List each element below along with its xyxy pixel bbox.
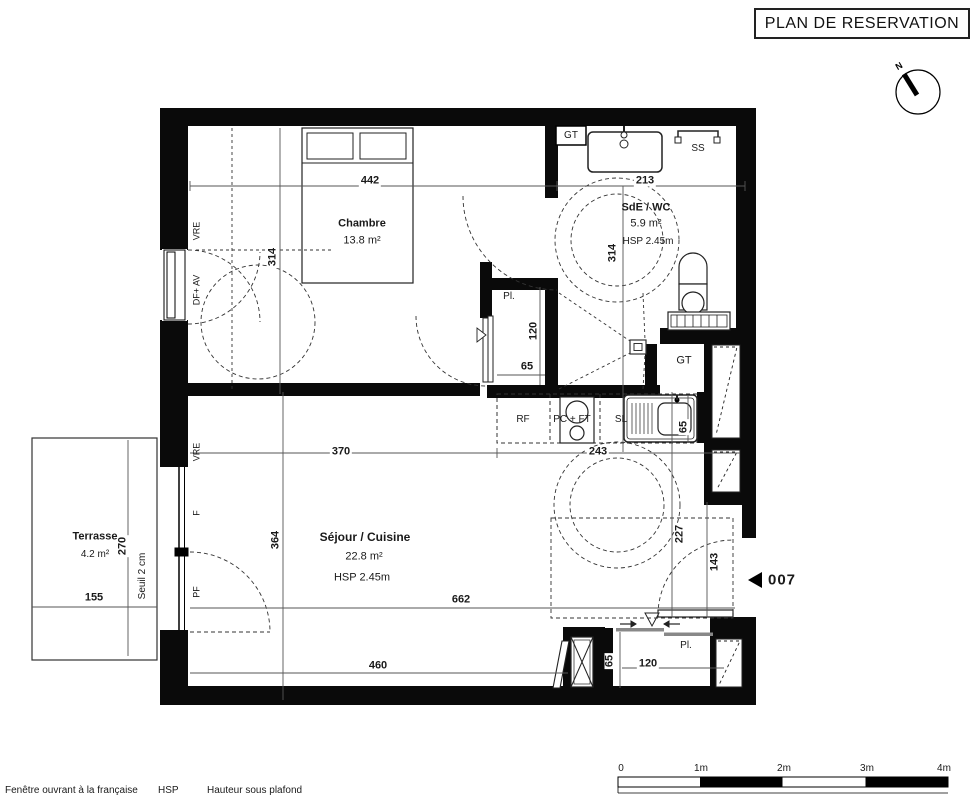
opening-df-av: DF+ AV [193, 275, 202, 306]
dim-sejour-width-1: 370 [330, 447, 352, 458]
towel-rail-label: SS [691, 144, 704, 154]
dim-chambre-width: 442 [359, 176, 381, 187]
bed [302, 128, 413, 283]
room-hsp-sejour: HSP 2.45m [334, 573, 390, 584]
legend-hsp-abbr: HSP [158, 786, 179, 796]
dim-terrasse-height: 270 [118, 535, 129, 557]
fridge-label: RF [516, 415, 529, 425]
closet-hall-label: Pl. [503, 292, 515, 302]
entry-marker-triangle [748, 572, 762, 588]
opening-f: F [193, 510, 202, 516]
dim-entry-width: 143 [710, 551, 721, 573]
dim-terrasse-width: 155 [83, 593, 105, 604]
dim-hall-height: 227 [675, 523, 686, 545]
dim-sejour-width-2: 662 [450, 595, 472, 606]
scale-tick-3m: 3m [860, 764, 874, 774]
dim-sde-width: 213 [634, 176, 656, 187]
room-area-chambre: 13.8 m² [343, 236, 380, 247]
opening-vre-sejour: VRE [193, 443, 202, 462]
floor-plan-page: PLAN DE RESERVATION N Chambre 13.8 m² Sd… [0, 0, 977, 800]
north-compass-icon [896, 70, 940, 114]
dim-closet-width: 65 [519, 362, 535, 373]
floorplan-geometry [0, 0, 977, 800]
legend-window: Fenêtre ouvrant à la française [5, 786, 138, 796]
dim-sejour-width-3: 460 [367, 661, 389, 672]
scale-bar [618, 777, 948, 793]
dim-sde-height: 314 [608, 242, 619, 264]
hob-oven-label: PC + FT [553, 415, 591, 425]
gt-top-label: GT [564, 131, 578, 141]
room-area-sejour: 22.8 m² [345, 552, 382, 563]
dim-kitchen-width: 243 [587, 447, 609, 458]
room-name-terrasse: Terrasse [72, 532, 117, 543]
dim-sejour-height: 364 [271, 529, 282, 551]
room-name-sde: SdE / WC [622, 203, 671, 214]
shower [559, 293, 646, 389]
room-name-sejour: Séjour / Cuisine [320, 531, 411, 543]
gt-shaft-label: GT [676, 356, 691, 367]
opening-vre-chambre: VRE [193, 222, 202, 241]
scale-tick-1m: 1m [694, 764, 708, 774]
dim-chambre-height: 314 [268, 246, 279, 268]
washer-label: SL [615, 415, 627, 425]
scale-tick-4m: 4m [937, 764, 951, 774]
opening-pf: PF [193, 586, 202, 598]
dim-closet2-width: 120 [637, 659, 659, 670]
dim-closet-height: 120 [529, 320, 540, 342]
closet-entry-label: Pl. [680, 641, 692, 651]
threshold-label: Seuil 2 cm [138, 553, 148, 600]
unit-number: 007 [768, 573, 796, 588]
room-hsp-sde: HSP 2.45m [623, 237, 674, 247]
room-area-sde: 5.9 m² [630, 219, 661, 230]
dim-sink-depth: 65 [679, 419, 690, 435]
scale-tick-0: 0 [618, 764, 624, 774]
room-area-terrasse: 4.2 m² [81, 550, 109, 560]
room-name-chambre: Chambre [338, 219, 386, 230]
legend-hsp-label: Hauteur sous plafond [207, 786, 302, 796]
dim-closet2-depth: 65 [605, 653, 616, 669]
scale-tick-2m: 2m [777, 764, 791, 774]
plan-title: PLAN DE RESERVATION [754, 8, 970, 39]
